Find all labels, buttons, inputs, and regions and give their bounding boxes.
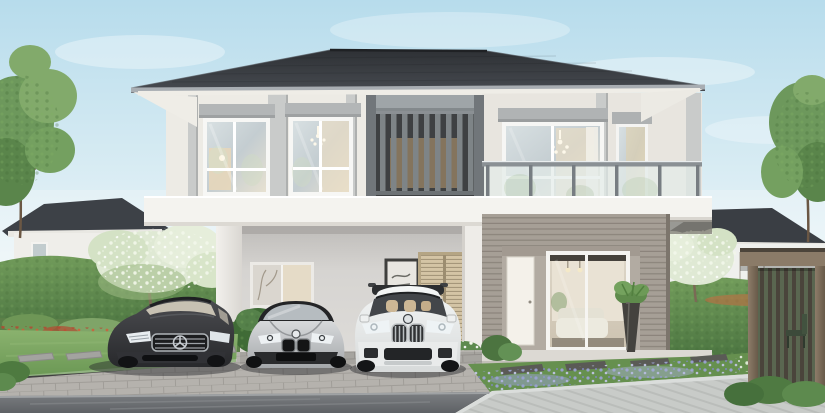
mercedes-grille (152, 334, 208, 351)
entry-door: White entrance door (507, 257, 534, 345)
living-window: Living room sliding glass window (546, 251, 630, 351)
bmw-roundel (404, 315, 413, 324)
cloud (55, 35, 225, 69)
shrub (498, 343, 522, 361)
house-rendering: Clear blue sky with soft clouds Neighbou… (0, 0, 825, 413)
overhang-shadow (670, 220, 712, 234)
louvre-screen: Vertical louvre feature screen (366, 95, 484, 196)
cladding-column-right (640, 214, 670, 354)
rendering-canvas: Clear blue sky with soft clouds Neighbou… (0, 0, 825, 413)
bmw-roundel (292, 330, 300, 338)
bedroom-window-right (285, 103, 361, 196)
bedroom-window-left (199, 104, 275, 196)
carport-window: Carport back-wall window (250, 262, 314, 308)
cloud (330, 12, 570, 48)
